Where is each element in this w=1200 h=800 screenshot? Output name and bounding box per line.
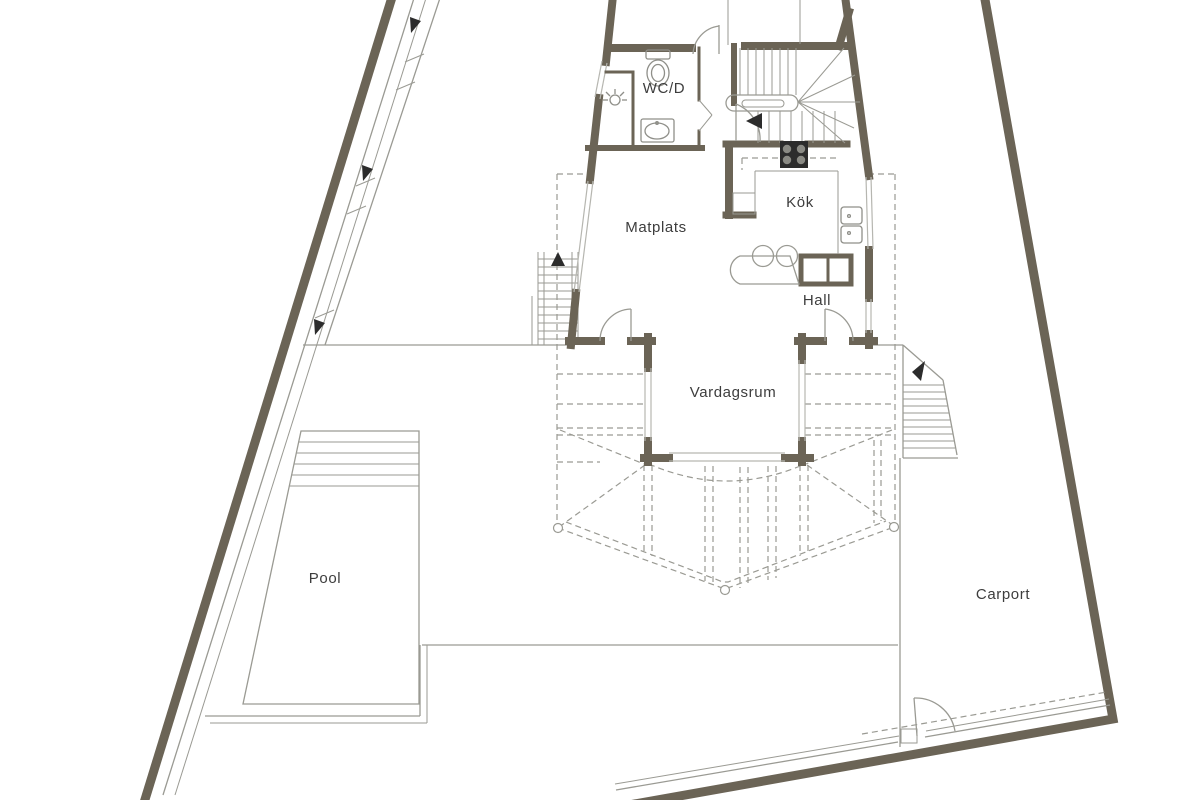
right-exterior-stairs — [903, 345, 958, 458]
terrace-edges — [205, 345, 903, 747]
wc-label: WC/D — [643, 80, 685, 97]
garden-gate — [914, 698, 955, 736]
dining-label: Matplats — [625, 219, 687, 236]
floor-plan: WC/D Kök Matplats Hall Vardagsrum Pool C… — [0, 0, 1200, 800]
kitchen-sink-icon — [841, 207, 862, 243]
interior-walls — [588, 46, 851, 284]
living-label: Vardagsrum — [690, 384, 777, 401]
property-boundary — [143, 0, 1113, 800]
deck-post — [890, 523, 899, 532]
shower-icon — [603, 89, 627, 105]
boundary-walkway — [163, 0, 441, 795]
stairs-up-arrow-icon — [912, 361, 925, 381]
hall-front-door — [825, 309, 853, 341]
carport-label: Carport — [976, 586, 1030, 603]
garden-fence — [615, 698, 1110, 790]
pool-label: Pool — [309, 570, 341, 587]
deck-post — [721, 586, 730, 595]
stairs-direction-arrow-icon — [746, 113, 762, 129]
stove-icon — [780, 141, 808, 168]
hall-label: Hall — [803, 292, 831, 309]
room-labels: WC/D Kök Matplats Hall Vardagsrum Pool C… — [309, 80, 1031, 603]
pool-steps — [289, 442, 419, 486]
pool-area — [243, 431, 419, 704]
walkway-arrow-icon — [314, 319, 325, 335]
kitchen-label: Kök — [786, 194, 814, 211]
dining-terrace-door — [600, 309, 631, 341]
hall-closet — [801, 256, 851, 284]
floor-plan-drawing: WC/D Kök Matplats Hall Vardagsrum Pool C… — [0, 0, 1200, 800]
kitchen-island — [730, 246, 799, 285]
main-staircase — [726, 48, 860, 143]
deck-post — [554, 524, 563, 533]
washbasin-icon — [641, 119, 674, 142]
